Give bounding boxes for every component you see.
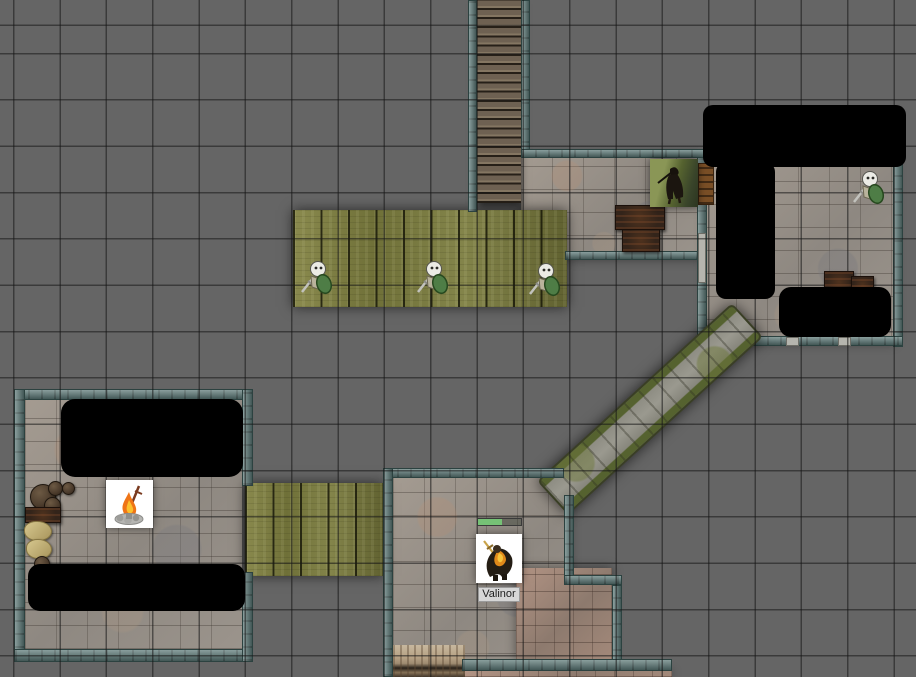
wall xyxy=(753,336,903,346)
health-bar xyxy=(477,518,522,526)
wall xyxy=(383,468,393,677)
crate[interactable] xyxy=(615,205,665,230)
door[interactable] xyxy=(838,337,851,346)
stone-bridge-diagonal xyxy=(537,303,763,515)
staircase xyxy=(477,0,521,203)
valinor-token[interactable] xyxy=(476,534,522,583)
wall xyxy=(14,389,25,662)
sack[interactable] xyxy=(24,521,52,541)
token-name-label: Valinor xyxy=(478,587,519,602)
dark-cloaked-figure-icon xyxy=(650,159,698,207)
campfire-icon xyxy=(106,480,153,528)
fog-mask xyxy=(703,105,906,167)
fog-mask xyxy=(779,287,891,337)
bottom-floor-strip xyxy=(462,671,672,677)
skeleton-token[interactable] xyxy=(523,258,565,300)
fog-mask xyxy=(716,162,775,299)
barrel[interactable] xyxy=(48,481,63,496)
wall xyxy=(383,468,564,478)
map-canvas[interactable]: Valinor xyxy=(0,0,916,677)
barrel[interactable] xyxy=(62,482,75,495)
wall xyxy=(564,495,574,585)
crate[interactable] xyxy=(622,229,660,252)
wall xyxy=(612,585,622,665)
skeleton-icon xyxy=(523,258,565,300)
wooden-steps xyxy=(393,645,465,677)
fog-mask xyxy=(28,564,245,611)
shelf[interactable] xyxy=(698,163,714,205)
wall xyxy=(242,389,253,486)
campfire-token[interactable] xyxy=(106,480,153,528)
wall xyxy=(462,659,672,671)
skeleton-icon xyxy=(847,166,889,208)
token-nameplate: Valinor xyxy=(476,584,522,602)
door[interactable] xyxy=(786,337,799,346)
wall xyxy=(468,0,477,212)
wall xyxy=(521,149,712,158)
health-bar-fill xyxy=(478,519,502,525)
wall xyxy=(14,649,253,662)
skeleton-token[interactable] xyxy=(847,166,889,208)
valinor-icon xyxy=(476,534,522,583)
dark-cloaked-figure-token[interactable] xyxy=(650,159,698,207)
skeleton-token[interactable] xyxy=(411,256,453,298)
wooden-bridge-lower xyxy=(245,483,384,576)
skeleton-icon xyxy=(411,256,453,298)
wall xyxy=(565,251,706,260)
wall xyxy=(564,575,622,585)
skeleton-icon xyxy=(295,256,337,298)
wall xyxy=(893,153,903,347)
fog-mask xyxy=(61,399,243,477)
door[interactable] xyxy=(698,233,706,283)
skeleton-token[interactable] xyxy=(295,256,337,298)
wall xyxy=(521,0,530,157)
crate[interactable] xyxy=(25,507,61,523)
